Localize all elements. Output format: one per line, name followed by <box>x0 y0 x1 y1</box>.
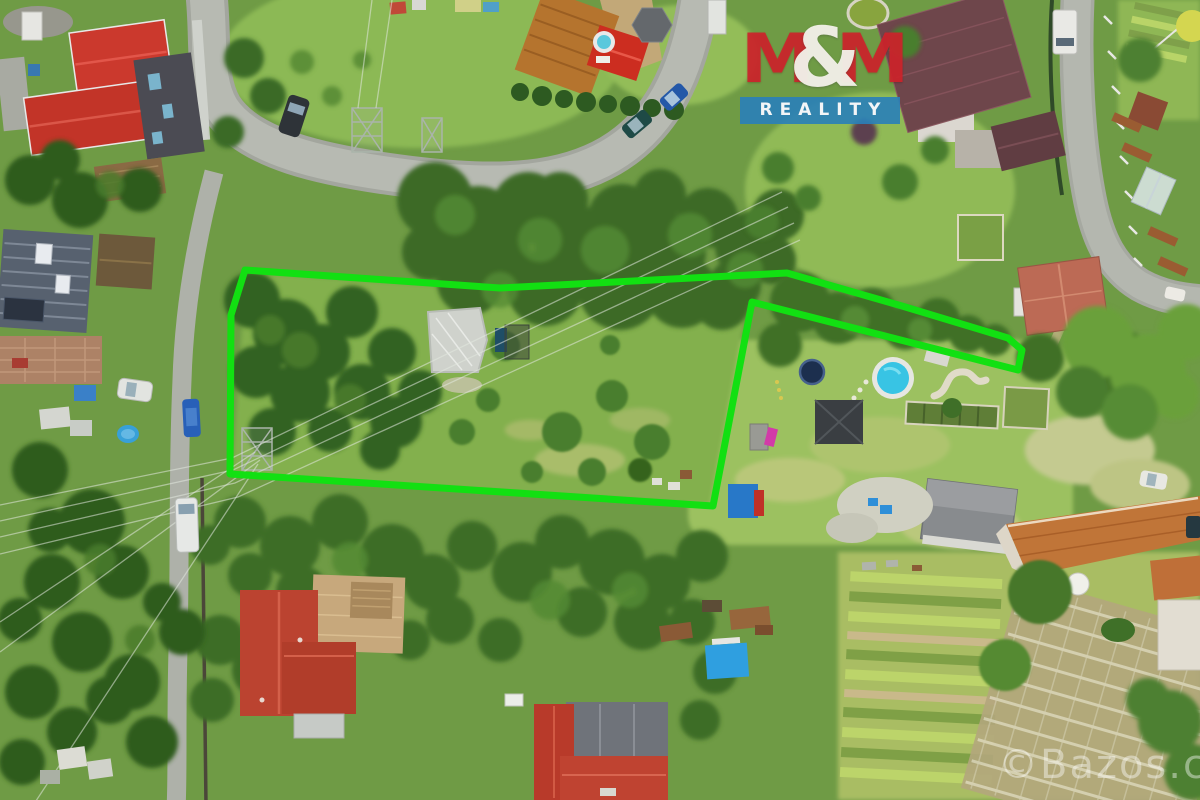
small-shed <box>750 424 768 450</box>
blue-tarp-pool <box>728 484 758 518</box>
trampoline <box>800 360 824 384</box>
pool <box>877 362 909 394</box>
agency-logo: M & M REALITY <box>740 24 900 124</box>
bazos-watermark: ©Bazos.cz <box>998 742 1200 788</box>
vegetable-bed-top <box>958 215 1003 260</box>
blue-tarp <box>705 643 749 680</box>
car-blue-parked-lane <box>182 399 201 438</box>
agency-logo-mm: M & M <box>740 24 900 94</box>
garden-table <box>505 694 523 706</box>
van-white-lane <box>175 498 199 553</box>
house-bottom-red-gray <box>534 702 668 800</box>
logo-ampersand: & <box>789 27 851 91</box>
car-white-midleft <box>117 378 153 403</box>
car-dark-right-edge <box>1186 516 1200 538</box>
aerial-photo <box>0 0 1200 800</box>
real-estate-aerial-photo: M & M REALITY ©Bazos.cz <box>0 0 1200 800</box>
